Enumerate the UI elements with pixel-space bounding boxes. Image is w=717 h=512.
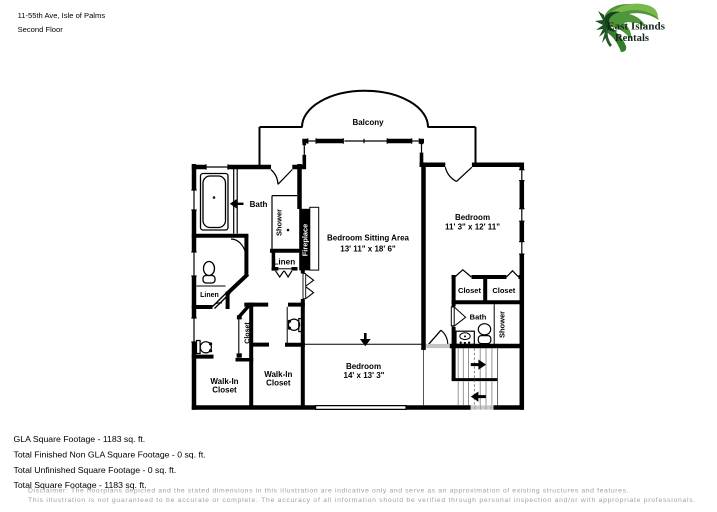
svg-text:Closet: Closet xyxy=(266,378,291,387)
svg-text:Bedroom Sitting Area: Bedroom Sitting Area xyxy=(327,234,409,243)
svg-text:Fireplace: Fireplace xyxy=(300,224,309,256)
svg-text:Closet: Closet xyxy=(492,286,515,295)
svg-text:Shower: Shower xyxy=(275,209,284,236)
svg-text:Closet: Closet xyxy=(458,286,481,295)
svg-text:Shower: Shower xyxy=(498,311,507,338)
svg-text:Total Unfinished Square Footag: Total Unfinished Square Footage - 0 sq. … xyxy=(14,465,177,475)
svg-text:11-55th Ave, Isle of Palms: 11-55th Ave, Isle of Palms xyxy=(18,11,106,20)
svg-text:East Islands: East Islands xyxy=(607,21,665,32)
svg-text:Bedroom: Bedroom xyxy=(346,362,381,371)
svg-text:14' x 13' 3": 14' x 13' 3" xyxy=(344,371,385,380)
svg-text:Rentals: Rentals xyxy=(615,32,650,44)
svg-text:11' 3" x 12' 11": 11' 3" x 12' 11" xyxy=(445,222,500,231)
svg-text:13' 11" x 18' 6": 13' 11" x 18' 6" xyxy=(340,245,396,254)
svg-text:Disclaimer: The floorplans dep: Disclaimer: The floorplans depicted and … xyxy=(28,488,629,495)
svg-text:Bedroom: Bedroom xyxy=(455,213,490,222)
svg-text:Bath: Bath xyxy=(470,312,487,321)
svg-text:Closet: Closet xyxy=(245,322,252,344)
svg-text:Closet: Closet xyxy=(212,386,237,395)
svg-text:Linen: Linen xyxy=(200,292,219,299)
svg-text:Linen: Linen xyxy=(273,258,295,267)
svg-text:Second Floor: Second Floor xyxy=(18,25,64,34)
svg-text:GLA Square Footage - 1183 sq.: GLA Square Footage - 1183 sq. ft. xyxy=(14,434,146,444)
svg-text:Bath: Bath xyxy=(250,200,268,209)
svg-text:This illustration is not guara: This illustration is not guaranteed to b… xyxy=(28,497,696,504)
svg-text:Balcony: Balcony xyxy=(352,118,384,127)
svg-text:Total Finished Non GLA Square: Total Finished Non GLA Square Footage - … xyxy=(14,449,206,459)
